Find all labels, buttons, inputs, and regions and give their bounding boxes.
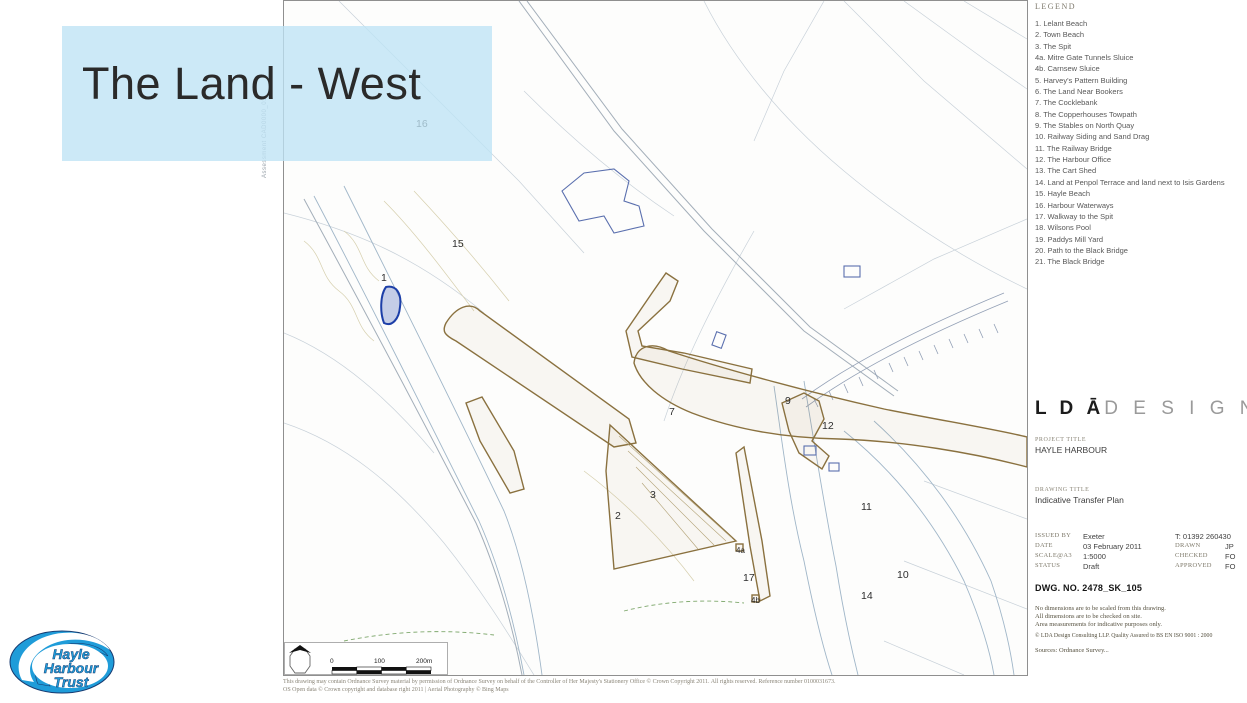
legend-item: 18. Wilsons Pool bbox=[1035, 222, 1245, 233]
drawing-notes: No dimensions are to be scaled from this… bbox=[1035, 605, 1245, 628]
legend-item: 4a. Mitre Gate Tunnels Sluice bbox=[1035, 52, 1245, 63]
scale-label-0: 0 bbox=[330, 658, 334, 665]
project-title: HAYLE HARBOUR bbox=[1035, 445, 1245, 455]
lda-logo-light: D E S I G N bbox=[1104, 398, 1247, 419]
legend-item: 21. The Black Bridge bbox=[1035, 256, 1245, 267]
legend-header: LEGEND bbox=[1035, 2, 1245, 11]
legend-item: 8. The Copperhouses Towpath bbox=[1035, 109, 1245, 120]
legend-item: 13. The Cart Shed bbox=[1035, 165, 1245, 176]
railway bbox=[802, 293, 1008, 407]
marker-11: 11 bbox=[861, 501, 872, 513]
issue-label: STATUS bbox=[1035, 562, 1083, 571]
legend-item: 20. Path to the Black Bridge bbox=[1035, 245, 1245, 256]
issue-label: ISSUED BY bbox=[1035, 532, 1083, 541]
marker-10: 10 bbox=[897, 569, 909, 581]
marker-3: 3 bbox=[650, 489, 656, 501]
note-line: Area measurements for indicative purpose… bbox=[1035, 621, 1245, 629]
parcel-left-strip bbox=[466, 397, 524, 493]
issue-label: SCALE@A3 bbox=[1035, 552, 1083, 561]
issue-label: CHECKED bbox=[1175, 552, 1225, 561]
legend-item: 10. Railway Siding and Sand Drag bbox=[1035, 131, 1245, 142]
scale-label-200: 200m bbox=[416, 658, 432, 665]
legend-item: 15. Hayle Beach bbox=[1035, 188, 1245, 199]
issue-value: Draft bbox=[1083, 562, 1175, 571]
lda-logo-bold: L D Ā bbox=[1035, 398, 1104, 419]
title-overlay: The Land - West bbox=[62, 26, 492, 161]
note-line: All dimensions are to be checked on site… bbox=[1035, 613, 1245, 621]
hht-logo-graphic: Hayle Harbour Trust bbox=[8, 628, 120, 698]
marker-4a: 4a bbox=[736, 546, 745, 555]
issue-value: 03 February 2011 bbox=[1083, 542, 1175, 551]
marker-15: 15 bbox=[452, 238, 464, 250]
project-title-label: PROJECT TITLE bbox=[1035, 437, 1245, 443]
parcel-beach-strip bbox=[444, 306, 636, 447]
drawing-number: DWG. NO. 2478_SK_105 bbox=[1035, 583, 1245, 593]
map-footnote: This drawing may contain Ordnance Survey… bbox=[283, 679, 1243, 694]
logo-text-trust: Trust bbox=[54, 674, 90, 690]
marker-4b: 4b bbox=[751, 596, 760, 605]
marker-1: 1 bbox=[381, 272, 387, 284]
highlight-parcel-1 bbox=[381, 287, 400, 324]
marker-2: 2 bbox=[615, 510, 621, 522]
issue-label: APPROVED bbox=[1175, 562, 1225, 571]
slide: 1 2 3 4a 4b 7 9 10 11 12 14 15 16 17 bbox=[0, 0, 1247, 698]
marker-7: 7 bbox=[669, 406, 675, 418]
page-title: The Land - West bbox=[82, 58, 421, 110]
issue-value: 1:5000 bbox=[1083, 552, 1175, 561]
issue-value: FO bbox=[1225, 552, 1243, 561]
issue-label: DATE bbox=[1035, 542, 1083, 551]
marker-9: 9 bbox=[785, 395, 791, 407]
copyright-line: © LDA Design Consulting LLP. Quality Ass… bbox=[1035, 633, 1245, 639]
hayle-harbour-trust-logo: Hayle Harbour Trust bbox=[8, 628, 120, 698]
legend-item: 11. The Railway Bridge bbox=[1035, 143, 1245, 154]
marker-17: 17 bbox=[743, 572, 755, 584]
issue-label: T: 01392 260430 bbox=[1175, 532, 1243, 541]
issue-value: Exeter bbox=[1083, 532, 1175, 541]
sources-line: Sources: Ordnance Survey... bbox=[1035, 647, 1245, 654]
footnote-line-2: OS Open data © Crown copyright and datab… bbox=[283, 687, 1243, 695]
legend-item: 17. Walkway to the Spit bbox=[1035, 211, 1245, 222]
issue-table: ISSUED BY Exeter T: 01392 260430 DATE 03… bbox=[1035, 532, 1245, 571]
legend-item: 19. Paddys Mill Yard bbox=[1035, 234, 1245, 245]
legend-item: 12. The Harbour Office bbox=[1035, 154, 1245, 165]
legend: LEGEND 1. Lelant Beach 2. Town Beach 3. … bbox=[1035, 2, 1245, 268]
legend-item: 16. Harbour Waterways bbox=[1035, 200, 1245, 211]
legend-item: 3. The Spit bbox=[1035, 41, 1245, 52]
issue-label: DRAWN bbox=[1175, 542, 1225, 551]
marker-12: 12 bbox=[822, 420, 834, 432]
marker-14: 14 bbox=[861, 590, 873, 602]
lda-design-logo: L D ĀD E S I G N bbox=[1035, 398, 1245, 420]
legend-item: 9. The Stables on North Quay bbox=[1035, 120, 1245, 131]
title-block: L D ĀD E S I G N PROJECT TITLE HAYLE HAR… bbox=[1035, 398, 1245, 654]
legend-item: 1. Lelant Beach bbox=[1035, 18, 1245, 29]
footpaths bbox=[344, 601, 744, 641]
legend-item: 7. The Cocklebank bbox=[1035, 97, 1245, 108]
legend-item: 2. Town Beach bbox=[1035, 29, 1245, 40]
issue-value: JP bbox=[1225, 542, 1243, 551]
legend-item: 5. Harvey's Pattern Building bbox=[1035, 75, 1245, 86]
issue-value: FO bbox=[1225, 562, 1243, 571]
legend-item: 14. Land at Penpol Terrace and land next… bbox=[1035, 177, 1245, 188]
drawing-title: Indicative Transfer Plan bbox=[1035, 495, 1245, 505]
note-line: No dimensions are to be scaled from this… bbox=[1035, 605, 1245, 613]
legend-item: 4b. Carnsew Sluice bbox=[1035, 63, 1245, 74]
large-building bbox=[562, 169, 644, 233]
parcel-spit bbox=[606, 425, 736, 569]
drawing-title-label: DRAWING TITLE bbox=[1035, 487, 1245, 493]
footnote-line-1: This drawing may contain Ordnance Survey… bbox=[283, 679, 1243, 687]
scale-box: 0 100 200m bbox=[285, 643, 448, 675]
legend-item: 6. The Land Near Bookers bbox=[1035, 86, 1245, 97]
scale-label-100: 100 bbox=[374, 658, 385, 665]
